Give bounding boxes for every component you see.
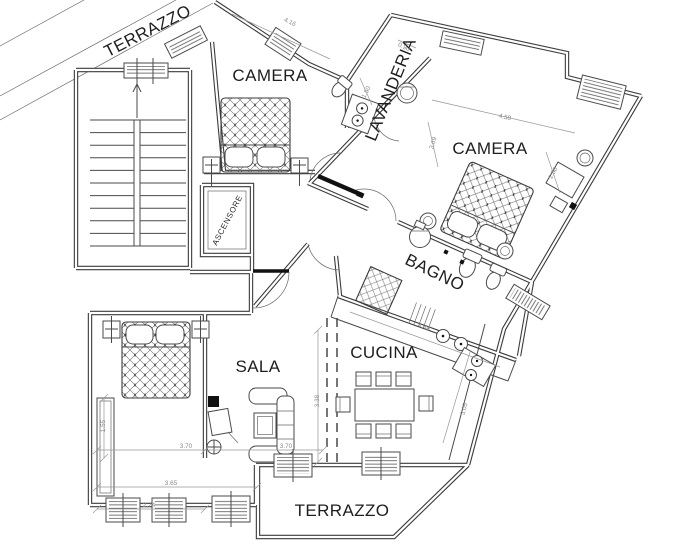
dim-text: 2.74 bbox=[143, 502, 156, 509]
tv-unit-icon bbox=[207, 396, 238, 454]
open-partition-dashed bbox=[327, 318, 337, 462]
bed-bedroom-bottom bbox=[122, 322, 190, 398]
dim-text: 1.55 bbox=[100, 419, 107, 432]
coffee-table-icon bbox=[254, 413, 276, 438]
dim-text: 4.48 bbox=[417, 322, 432, 333]
dim-text: 3.70 bbox=[280, 443, 293, 450]
dim-text: 3.05 bbox=[459, 402, 469, 416]
bed-camera-right bbox=[440, 161, 535, 259]
walls bbox=[76, 2, 641, 537]
room-label-cucina: CUCINA bbox=[350, 343, 418, 362]
room-label-bagno: BAGNO bbox=[402, 250, 467, 295]
room-label-sala: SALA bbox=[235, 357, 280, 376]
staircase bbox=[90, 84, 186, 246]
room-label-camera-right: CAMERA bbox=[452, 139, 527, 158]
dressing-table-icon bbox=[546, 150, 593, 213]
dim-text: 4.16 bbox=[283, 17, 298, 29]
floor-plan-page: CAMERA CAMERA LAVANDERIA BAGNO CUCINA SA… bbox=[0, 0, 696, 540]
dining-table bbox=[336, 372, 433, 438]
floor-plan-svg: CAMERA CAMERA LAVANDERIA BAGNO CUCINA SA… bbox=[0, 0, 696, 540]
bidet-icon bbox=[482, 263, 507, 292]
dim-text: 1.50 bbox=[361, 85, 373, 100]
dim-text: 3.69 bbox=[428, 136, 438, 150]
bed-camera-top bbox=[221, 98, 290, 172]
room-label-terrazzo-bottom: TERRAZZO bbox=[295, 501, 390, 520]
room-label-ascensore: ASCENSORE bbox=[210, 194, 244, 247]
room-label-camera-top: CAMERA bbox=[232, 66, 307, 85]
dim-text: 3.70 bbox=[180, 443, 193, 450]
stair-window-icon bbox=[124, 58, 168, 84]
dim-text: 3.65 bbox=[165, 480, 178, 487]
dim-text: 3.38 bbox=[314, 394, 321, 407]
dim-mark bbox=[443, 249, 448, 254]
dim-text: 4.58 bbox=[498, 113, 512, 123]
